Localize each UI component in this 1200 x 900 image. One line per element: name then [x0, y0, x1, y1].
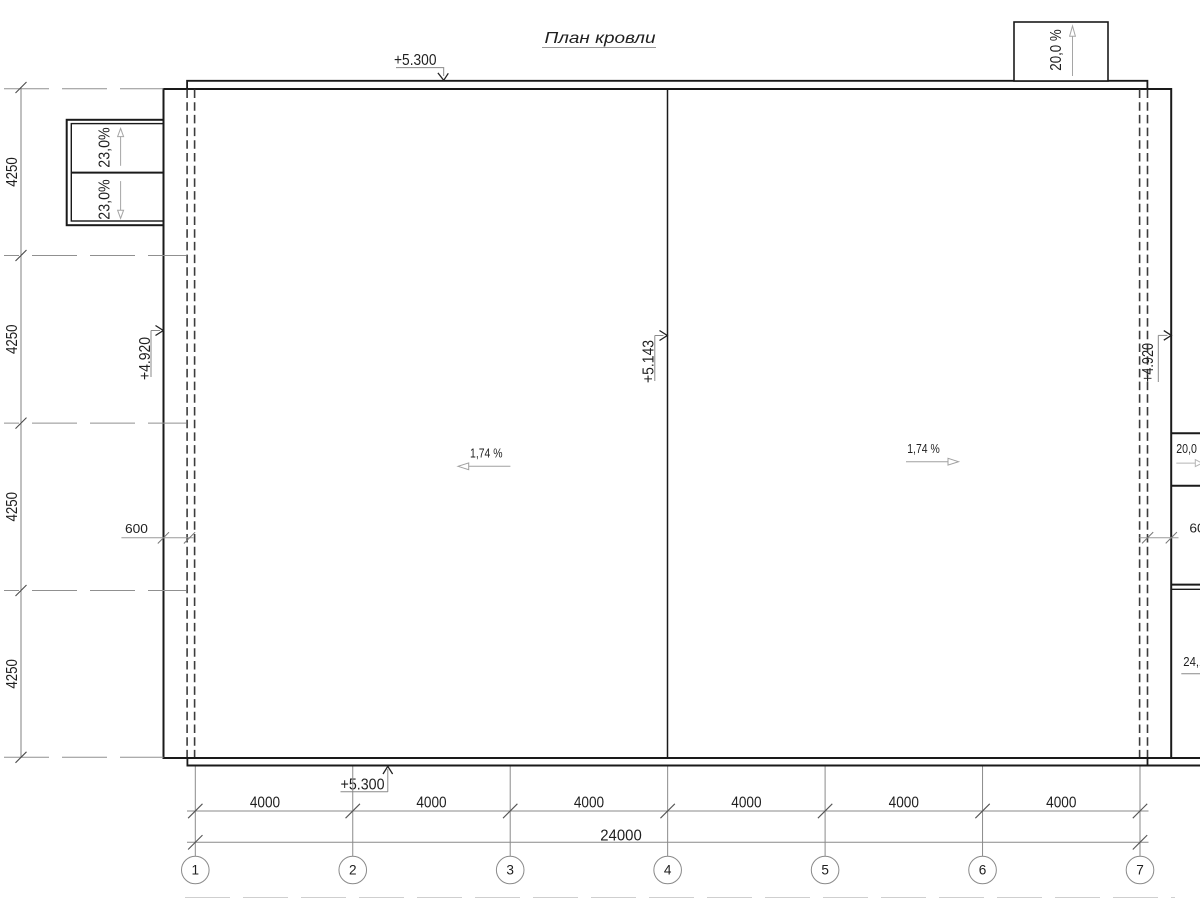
svg-text:4000: 4000	[574, 795, 605, 812]
svg-text:4000: 4000	[1046, 795, 1077, 812]
svg-text:24000: 24000	[600, 827, 642, 844]
svg-text:4250: 4250	[4, 157, 21, 187]
svg-text:20,0: 20,0	[1176, 442, 1197, 456]
svg-text:4000: 4000	[250, 795, 281, 812]
svg-text:4: 4	[664, 863, 672, 878]
svg-text:4250: 4250	[4, 659, 21, 689]
svg-text:2: 2	[349, 863, 357, 878]
svg-text:600: 600	[125, 521, 148, 536]
svg-text:+5.300: +5.300	[341, 777, 385, 794]
svg-text:24,1: 24,1	[1183, 654, 1200, 669]
svg-text:3: 3	[506, 863, 514, 878]
svg-text:1,74 %: 1,74 %	[907, 442, 940, 456]
svg-text:600: 600	[1189, 521, 1200, 536]
svg-text:20,0 %: 20,0 %	[1048, 29, 1065, 71]
svg-text:4250: 4250	[4, 492, 21, 522]
svg-text:1,74 %: 1,74 %	[470, 446, 503, 460]
svg-text:4000: 4000	[416, 795, 447, 812]
svg-text:6: 6	[979, 863, 987, 878]
svg-text:+5.300: +5.300	[394, 52, 437, 69]
svg-text:4000: 4000	[731, 795, 762, 812]
svg-text:План кровли: План кровли	[545, 30, 656, 47]
svg-text:4000: 4000	[889, 795, 920, 812]
svg-text:23,0%: 23,0%	[97, 127, 114, 168]
svg-text:23,0%: 23,0%	[97, 179, 114, 220]
svg-text:5: 5	[821, 863, 829, 878]
svg-text:1: 1	[192, 863, 200, 878]
svg-text:+4.920: +4.920	[1140, 343, 1157, 382]
svg-text:7: 7	[1136, 863, 1144, 878]
svg-text:4250: 4250	[4, 324, 21, 354]
